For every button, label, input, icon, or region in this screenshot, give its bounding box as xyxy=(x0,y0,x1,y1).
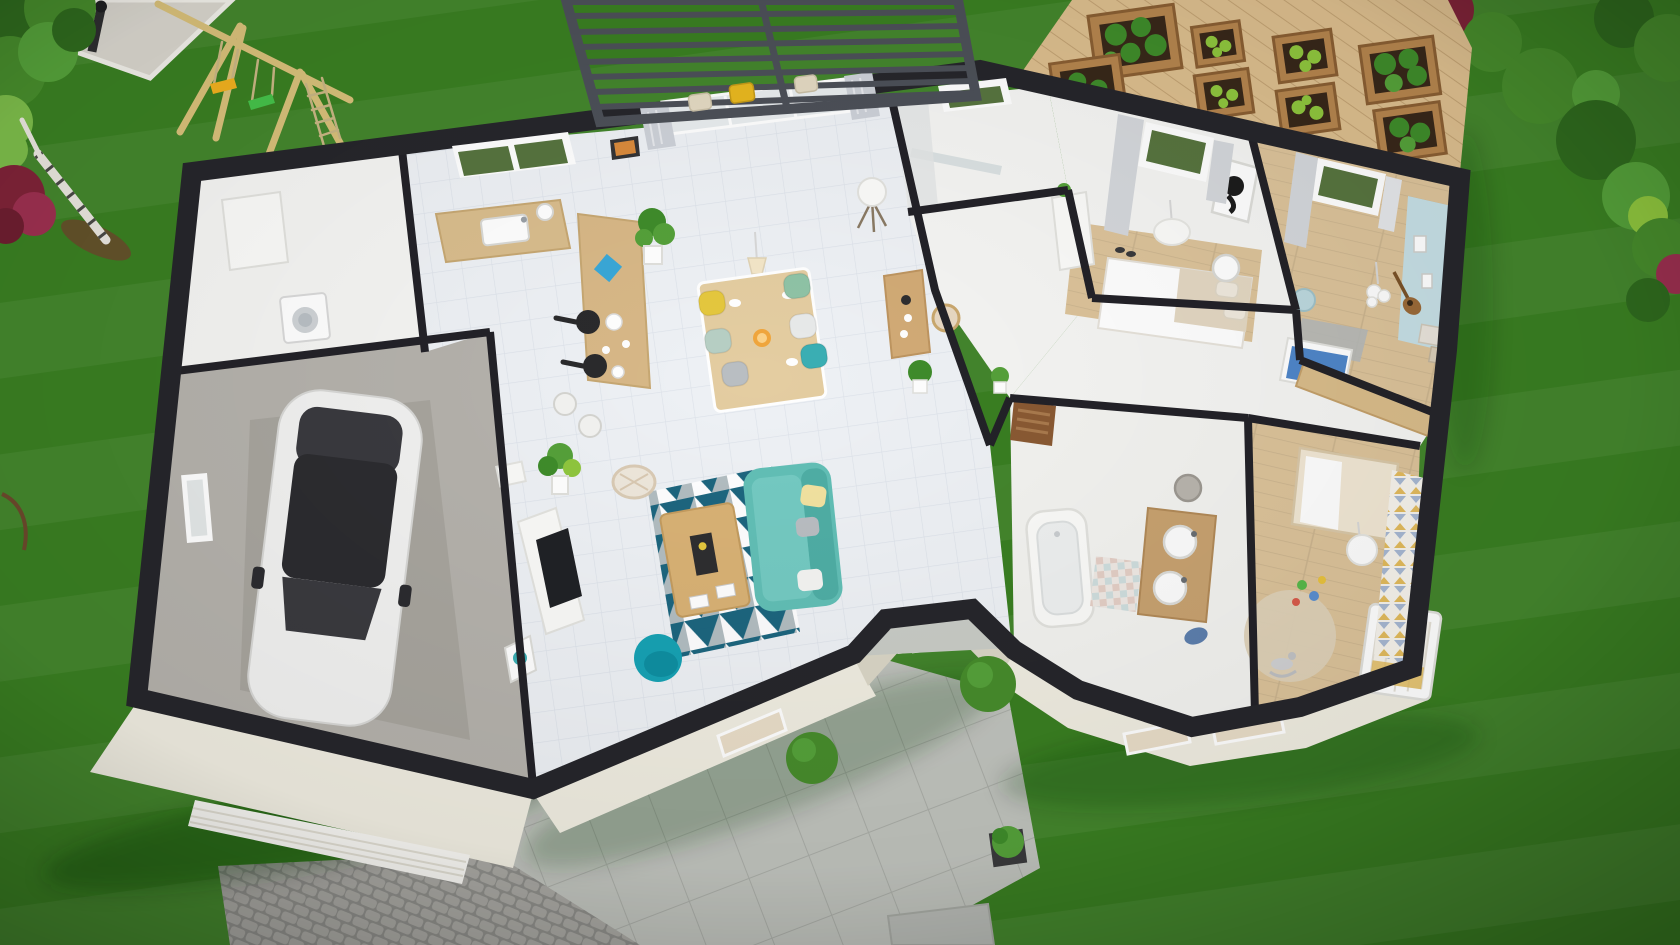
planter-box xyxy=(1273,29,1337,83)
scene-svg xyxy=(0,0,1680,945)
dining-chair-teal xyxy=(799,342,828,369)
toy xyxy=(1309,591,1319,601)
dining-chair-mint xyxy=(703,327,732,354)
entrance-bush xyxy=(786,732,838,784)
dining-chair-gray xyxy=(720,360,749,387)
sink xyxy=(1164,526,1196,558)
terrace-chair-yellow xyxy=(729,82,755,103)
terrace-chair xyxy=(688,93,712,112)
wire-chair xyxy=(613,466,655,498)
toddler-bed xyxy=(1292,448,1398,540)
dining-chair-white xyxy=(788,312,817,339)
armchair xyxy=(634,634,682,682)
bathroom-door xyxy=(1010,400,1056,446)
kitchen-sink xyxy=(481,214,530,245)
toy xyxy=(1292,598,1300,606)
toy xyxy=(1297,580,1307,590)
terrace-chair xyxy=(794,75,818,94)
sideboard xyxy=(884,270,930,358)
small-frame xyxy=(1422,274,1432,288)
planter-box xyxy=(1191,21,1244,67)
dining-chair-yellow xyxy=(697,289,726,316)
master-side-table xyxy=(1213,255,1239,281)
sofa xyxy=(742,461,845,613)
sofa-pillow-gray xyxy=(795,516,820,537)
laundry-basket xyxy=(1175,475,1201,501)
bath-rug xyxy=(1090,556,1142,612)
floorplan-render xyxy=(0,0,1680,945)
toy xyxy=(1318,576,1326,584)
hall-plant xyxy=(991,367,1009,393)
sink-vanity xyxy=(1138,508,1216,622)
patio-planter-cube xyxy=(989,826,1027,867)
sofa-pillow-white xyxy=(797,568,824,591)
bathtub xyxy=(1025,508,1095,629)
sink xyxy=(1154,572,1186,604)
dining-chair-green xyxy=(782,272,811,299)
entrance-bush xyxy=(960,656,1016,712)
washing-machine xyxy=(280,293,331,344)
small-frame xyxy=(1414,236,1426,252)
coffee-machine xyxy=(537,204,553,220)
master-pillow xyxy=(1215,281,1239,299)
planter-box xyxy=(1359,36,1440,104)
sofa-pillow-yellow xyxy=(800,484,828,508)
laundry-cabinet xyxy=(222,192,288,270)
